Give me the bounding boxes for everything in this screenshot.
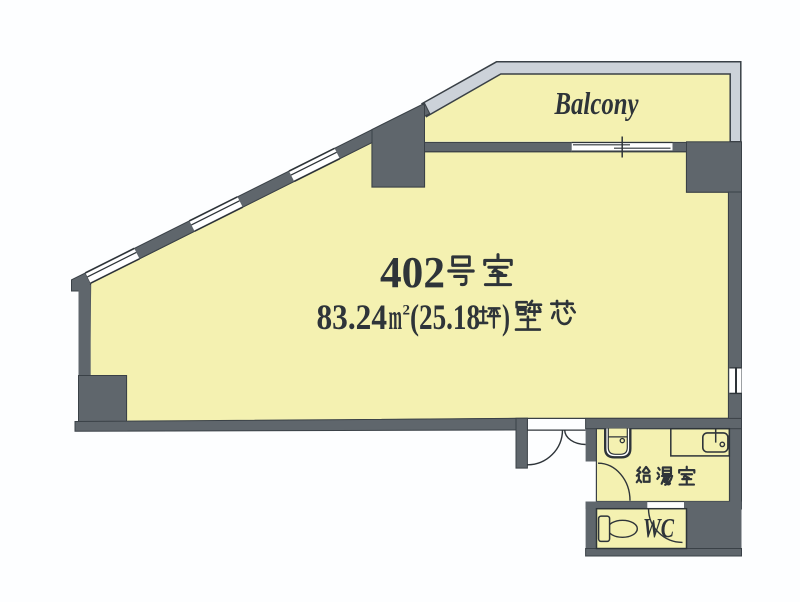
svg-text:m: m xyxy=(389,297,403,337)
svg-text:Balcony: Balcony xyxy=(554,85,639,121)
svg-text:(25.18: (25.18 xyxy=(410,297,480,337)
svg-text:WC: WC xyxy=(643,513,675,543)
svg-text:): ) xyxy=(502,297,510,337)
svg-text:2: 2 xyxy=(403,303,411,319)
svg-text:402: 402 xyxy=(380,247,445,297)
svg-text:83.24: 83.24 xyxy=(317,297,388,337)
